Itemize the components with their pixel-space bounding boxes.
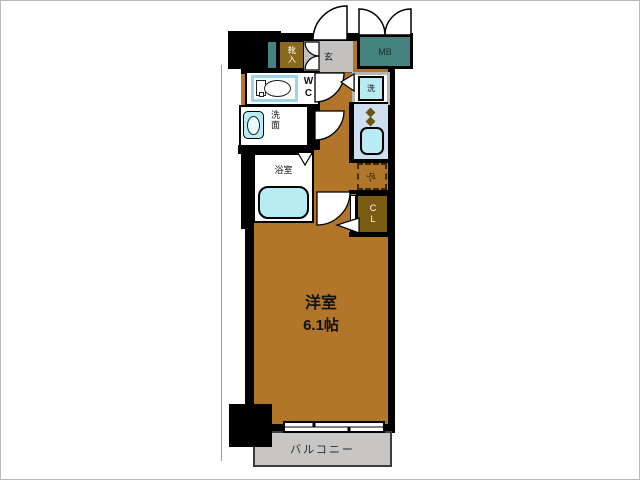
washroom-door-icon (315, 111, 344, 140)
shoe-cabinet-door-icon (305, 56, 319, 70)
floor-plan: MB 靴入 玄 WC 洗面 浴室 洗 冷 CL (0, 0, 640, 480)
door-symbols-layer (1, 1, 640, 480)
door-triangle-icon (337, 218, 359, 233)
shoe-cabinet-door-icon (305, 42, 319, 56)
entrance-door-icon (313, 6, 347, 40)
bathroom-folding-door-icon (298, 153, 312, 165)
room-door-icon (317, 192, 350, 225)
meter-box-door-icon (359, 9, 385, 35)
wc-door-icon (315, 73, 344, 102)
sliding-window-icon (284, 422, 384, 432)
meter-box-door-icon (385, 9, 411, 35)
